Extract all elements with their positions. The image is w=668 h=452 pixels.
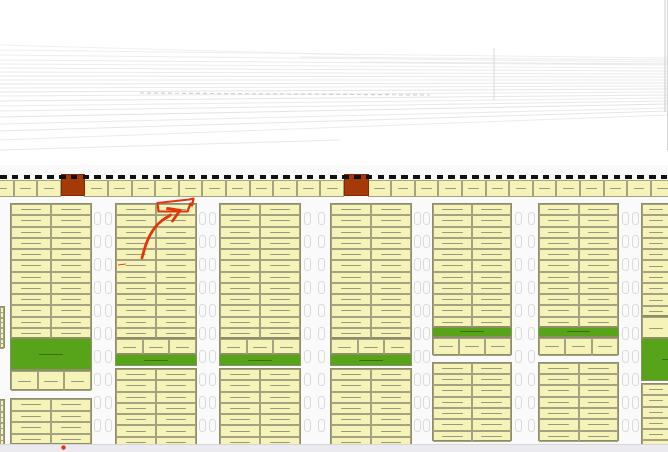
lot — [472, 283, 511, 294]
lot-label-squiggle — [166, 265, 187, 266]
lot — [116, 283, 156, 294]
lot-label-squiggle — [270, 220, 291, 221]
lot — [539, 374, 579, 385]
lot — [472, 204, 511, 215]
parking-bay-mark — [105, 396, 112, 409]
lot-label-squiggle — [126, 209, 147, 210]
lot — [371, 272, 411, 283]
parking-bay-mark — [622, 396, 629, 409]
lot — [11, 317, 51, 328]
lot — [260, 260, 300, 271]
parking-bay-mark — [199, 350, 206, 363]
lot-label-squiggle — [381, 265, 402, 266]
lot — [331, 294, 371, 305]
parking-bay-mark — [209, 235, 216, 248]
lot — [433, 238, 472, 249]
lot — [642, 204, 668, 215]
parking-bay-mark — [199, 212, 206, 225]
lot — [220, 380, 260, 391]
lot-rows-section — [219, 338, 301, 354]
lot-label-squiggle — [166, 322, 187, 323]
parking-bay-mark — [515, 281, 522, 294]
boundary-lot — [627, 180, 651, 197]
parking-bay-mark — [105, 350, 112, 363]
lot — [472, 272, 511, 283]
lot — [0, 423, 4, 435]
boundary-dash — [0, 175, 7, 179]
lot — [116, 260, 156, 271]
parking-bay-mark — [105, 304, 112, 317]
parking-bay-mark — [423, 350, 430, 363]
lot — [539, 204, 579, 215]
lot-label-squiggle — [230, 220, 251, 221]
lot — [371, 249, 411, 260]
lot-label-squiggle — [588, 390, 609, 391]
lot — [38, 371, 65, 391]
lot-label-squiggle — [341, 220, 362, 221]
lot-label-squiggle — [649, 423, 663, 424]
lot-label-squiggle — [649, 412, 663, 413]
boundary-dash — [460, 175, 467, 179]
lot-label-squiggle — [548, 322, 569, 323]
parking-bay-mark — [515, 258, 522, 271]
lot-label-squiggle — [442, 413, 462, 414]
lot-label-squiggle — [649, 243, 663, 244]
parking-bay-mark — [622, 350, 629, 363]
parking-bay-mark — [304, 304, 311, 317]
boundary-dash — [531, 175, 538, 179]
lot — [433, 260, 472, 271]
lot-label-squiggle — [270, 333, 291, 334]
parking-bay-mark — [632, 396, 639, 409]
boundary-dash — [366, 175, 373, 179]
parking-bay-mark — [528, 212, 535, 225]
lot-label-squiggle — [341, 288, 362, 289]
parking-bay-mark — [528, 258, 535, 271]
boundary-dash — [94, 175, 101, 179]
lot — [642, 395, 668, 406]
lot-label-squiggle — [341, 374, 362, 375]
lot — [116, 414, 156, 425]
lot-label-squiggle — [166, 408, 187, 409]
lot-rows-section — [641, 316, 668, 338]
lot-label-squiggle — [126, 232, 147, 233]
lot — [433, 419, 472, 430]
parking-bay-mark — [515, 212, 522, 225]
lot-rows-section — [432, 362, 512, 441]
lot — [51, 305, 91, 316]
parking-bay-mark — [423, 396, 430, 409]
lot — [539, 338, 565, 356]
lot-label-squiggle — [166, 431, 187, 432]
lot — [51, 399, 91, 411]
lot — [156, 227, 196, 238]
lot-label-squiggle — [539, 188, 550, 189]
boundary-dash — [295, 175, 302, 179]
boundary-dash — [614, 175, 621, 179]
lot-label-squiggle — [280, 188, 291, 189]
lot-label-squiggle — [21, 265, 42, 266]
lot — [11, 294, 51, 305]
lot-label-squiggle — [381, 397, 402, 398]
parking-bay-mark — [515, 419, 522, 432]
parking-bay-mark — [515, 235, 522, 248]
lot — [220, 260, 260, 271]
lot — [539, 419, 579, 430]
lot — [539, 215, 579, 226]
lot-label-squiggle — [548, 379, 569, 380]
lot-label-squiggle — [398, 188, 409, 189]
lot — [331, 414, 371, 425]
parking-bay-mark — [304, 235, 311, 248]
lot — [371, 283, 411, 294]
boundary-dash — [484, 175, 491, 179]
parking-bay-mark — [94, 327, 101, 340]
lot — [642, 227, 668, 238]
lot-label-squiggle — [44, 381, 58, 382]
lot — [592, 338, 618, 356]
parking-bay-mark — [199, 373, 206, 386]
lot — [539, 408, 579, 419]
block-5 — [432, 203, 512, 441]
parking-bay-mark — [304, 327, 311, 340]
lot-label-squiggle — [481, 232, 501, 233]
lot — [220, 425, 260, 436]
parking-bay-mark — [632, 327, 639, 340]
lot-rows-section — [219, 203, 301, 338]
lot — [51, 411, 91, 423]
boundary-dash — [496, 175, 503, 179]
parking-bay-mark — [199, 327, 206, 340]
parking-bay-mark — [304, 258, 311, 271]
lot-rows-section — [432, 203, 512, 327]
lot-label-squiggle — [166, 333, 187, 334]
parking-bay-mark — [94, 235, 101, 248]
lot-label-squiggle — [341, 277, 362, 278]
lot — [579, 283, 619, 294]
parking-bay-mark — [199, 281, 206, 294]
lot — [433, 215, 472, 226]
lot — [260, 392, 300, 403]
lot-label-squiggle — [545, 346, 558, 347]
lot-label-squiggle — [481, 379, 501, 380]
lot-rows-section — [10, 203, 92, 338]
boundary-dash — [271, 175, 278, 179]
lot-label-squiggle — [270, 209, 291, 210]
parking-bay-mark — [304, 281, 311, 294]
lot-label-squiggle — [270, 254, 291, 255]
lot — [331, 369, 371, 380]
lot-label-squiggle — [230, 397, 251, 398]
lot-label-squiggle — [270, 232, 291, 233]
lot-rows-section — [10, 370, 92, 390]
lot-label-squiggle — [610, 188, 621, 189]
parking-bay-mark — [318, 235, 325, 248]
lot — [579, 385, 619, 396]
parking-bay-mark — [318, 419, 325, 432]
lot-label-squiggle — [327, 188, 338, 189]
lot — [11, 249, 51, 260]
parking-bay-mark — [622, 212, 629, 225]
lot-label-squiggle — [166, 374, 187, 375]
lot-label-squiggle — [144, 360, 168, 361]
lot-label-squiggle — [230, 322, 251, 323]
lot — [371, 380, 411, 391]
lot-label-squiggle — [21, 322, 42, 323]
lot — [642, 260, 668, 271]
parking-bay-mark — [318, 350, 325, 363]
boundary-dash — [224, 175, 231, 179]
lot — [485, 338, 511, 356]
boundary-dash — [448, 175, 455, 179]
lot — [358, 339, 385, 355]
lot-label-squiggle — [341, 299, 362, 300]
lot-label-squiggle — [341, 385, 362, 386]
lot-rows-section — [115, 338, 197, 354]
lot-label-squiggle — [162, 188, 173, 189]
lot-label-squiggle — [516, 188, 527, 189]
lot-label-squiggle — [61, 277, 82, 278]
lot-label-squiggle — [230, 277, 251, 278]
lot — [579, 431, 619, 442]
lot-label-squiggle — [588, 288, 609, 289]
lot-label-squiggle — [421, 188, 432, 189]
lot-label-squiggle — [442, 209, 462, 210]
lot-label-squiggle — [185, 188, 196, 189]
lot-label-squiggle — [649, 400, 663, 401]
boundary-lot — [108, 180, 132, 197]
lot-label-squiggle — [61, 439, 82, 440]
parking-bay-mark — [304, 419, 311, 432]
lot-label-squiggle — [126, 322, 147, 323]
lot-rows-section — [0, 306, 5, 348]
lot-label-squiggle — [256, 188, 267, 189]
boundary-dash — [165, 175, 172, 179]
parking-bay-mark — [199, 235, 206, 248]
lot-label-squiggle — [588, 265, 609, 266]
boundary-dash — [177, 175, 184, 179]
lot — [11, 283, 51, 294]
parking-bay-mark — [515, 327, 522, 340]
lot-label-squiggle — [588, 310, 609, 311]
lot — [472, 363, 511, 374]
lot-label-squiggle — [166, 232, 187, 233]
lot-label-squiggle — [230, 310, 251, 311]
lot-label-squiggle — [126, 397, 147, 398]
lot-label-squiggle — [61, 416, 82, 417]
lot-label-squiggle — [341, 322, 362, 323]
lot — [51, 283, 91, 294]
parking-bay-mark — [304, 396, 311, 409]
lot — [260, 238, 300, 249]
lot — [11, 305, 51, 316]
lot-label-squiggle — [126, 220, 147, 221]
lot — [260, 294, 300, 305]
lot — [579, 238, 619, 249]
lot-label-squiggle — [481, 220, 501, 221]
lot — [260, 283, 300, 294]
parking-bay-mark — [528, 373, 535, 386]
lot-label-squiggle — [253, 347, 267, 348]
green-space — [219, 354, 301, 366]
lot-label-squiggle — [481, 254, 501, 255]
block-2 — [115, 203, 197, 447]
parking-bay-mark — [515, 304, 522, 317]
parking-bay-mark — [528, 281, 535, 294]
lot-label-squiggle — [381, 385, 402, 386]
lot-label-squiggle — [21, 220, 42, 221]
lot-label-squiggle — [61, 427, 82, 428]
lot-label-squiggle — [563, 188, 574, 189]
lot — [260, 305, 300, 316]
boundary-lot — [604, 180, 628, 197]
lot-label-squiggle — [442, 424, 462, 425]
parking-bay-mark — [423, 373, 430, 386]
lot — [331, 425, 371, 436]
lot-label-squiggle — [270, 265, 291, 266]
lot-label-squiggle — [649, 209, 663, 210]
lot-rows-section — [219, 368, 301, 447]
lot — [371, 369, 411, 380]
lot — [371, 227, 411, 238]
parking-bay-mark — [414, 350, 421, 363]
parking-bay-mark — [105, 419, 112, 432]
green-space — [432, 327, 512, 337]
lot — [116, 249, 156, 260]
lot — [220, 215, 260, 226]
lot — [539, 238, 579, 249]
lot-label-squiggle — [61, 322, 82, 323]
parking-bay-mark — [94, 396, 101, 409]
lot — [642, 407, 668, 418]
lot-label-squiggle — [442, 379, 462, 380]
lot-label-squiggle — [649, 266, 663, 267]
lot-label-squiggle — [381, 288, 402, 289]
lot-label-squiggle — [649, 277, 663, 278]
lot-label-squiggle — [21, 427, 42, 428]
lot — [156, 238, 196, 249]
lot-label-squiggle — [230, 288, 251, 289]
lot — [116, 339, 143, 355]
lot — [472, 431, 511, 442]
lot-label-squiggle — [270, 277, 291, 278]
lot — [51, 249, 91, 260]
parking-bay-mark — [528, 350, 535, 363]
lot-label-squiggle — [21, 243, 42, 244]
lot-label-squiggle — [649, 328, 663, 329]
lot — [156, 305, 196, 316]
lot-label-squiggle — [1, 405, 2, 406]
boundary-lot — [14, 180, 38, 197]
lot — [260, 369, 300, 380]
parking-bay-mark — [528, 235, 535, 248]
lot — [642, 384, 668, 395]
lot-label-squiggle — [588, 299, 609, 300]
boundary-lot — [651, 180, 668, 197]
lot — [539, 272, 579, 283]
boundary-lot — [37, 180, 61, 197]
lot-label-squiggle — [21, 333, 42, 334]
lot — [472, 260, 511, 271]
boundary-dash — [24, 175, 31, 179]
parking-bay-mark — [304, 373, 311, 386]
lot — [579, 363, 619, 374]
lot-label-squiggle — [442, 368, 462, 369]
boundary-lot — [297, 180, 321, 197]
lot-label-squiggle — [468, 188, 479, 189]
parking-bay-mark — [414, 327, 421, 340]
lot-label-squiggle — [465, 346, 478, 347]
lot-label-squiggle — [442, 310, 462, 311]
boundary-dash — [602, 175, 609, 179]
lot-rows-section — [330, 203, 412, 338]
lot-label-squiggle — [548, 424, 569, 425]
lot — [51, 227, 91, 238]
lot-label-squiggle — [341, 232, 362, 233]
lot-label-squiggle — [1, 428, 2, 429]
lot — [51, 215, 91, 226]
lot — [539, 363, 579, 374]
lot — [260, 317, 300, 328]
lot-label-squiggle — [442, 436, 462, 437]
lot — [433, 374, 472, 385]
parking-bay-mark — [209, 304, 216, 317]
boundary-lot — [0, 180, 14, 197]
lot-label-squiggle — [442, 390, 462, 391]
boundary-dash — [519, 175, 526, 179]
lot — [579, 305, 619, 316]
lot-label-squiggle — [166, 442, 187, 443]
lot — [565, 338, 591, 356]
boundary-lot — [202, 180, 226, 197]
lot-label-squiggle — [359, 360, 383, 361]
parking-bay-mark — [94, 212, 101, 225]
lot — [156, 260, 196, 271]
green-space — [115, 354, 197, 366]
lot — [11, 204, 51, 215]
lot-label-squiggle — [232, 188, 243, 189]
lot — [371, 260, 411, 271]
lot-label-squiggle — [588, 368, 609, 369]
lot — [579, 419, 619, 430]
lot — [433, 305, 472, 316]
edge-lot-sliver — [0, 306, 5, 348]
lot-label-squiggle — [649, 288, 663, 289]
green-space — [330, 354, 412, 366]
lot-label-squiggle — [126, 374, 147, 375]
lot-label-squiggle — [1, 322, 2, 323]
parking-bay-mark — [199, 258, 206, 271]
lot — [156, 294, 196, 305]
parking-bay-mark — [423, 235, 430, 248]
parking-bay-mark — [318, 327, 325, 340]
lot-label-squiggle — [1, 417, 2, 418]
lot — [539, 385, 579, 396]
lot — [51, 260, 91, 271]
lot-label-squiggle — [21, 299, 42, 300]
lot-label-squiggle — [588, 232, 609, 233]
lot — [642, 317, 668, 339]
lot — [642, 418, 668, 429]
lot-label-squiggle — [381, 310, 402, 311]
lot-label-squiggle — [230, 408, 251, 409]
parking-bay-mark — [632, 258, 639, 271]
lot — [260, 204, 300, 215]
lot-label-squiggle — [588, 424, 609, 425]
lot — [371, 392, 411, 403]
parking-bay-mark — [622, 327, 629, 340]
lot — [579, 215, 619, 226]
